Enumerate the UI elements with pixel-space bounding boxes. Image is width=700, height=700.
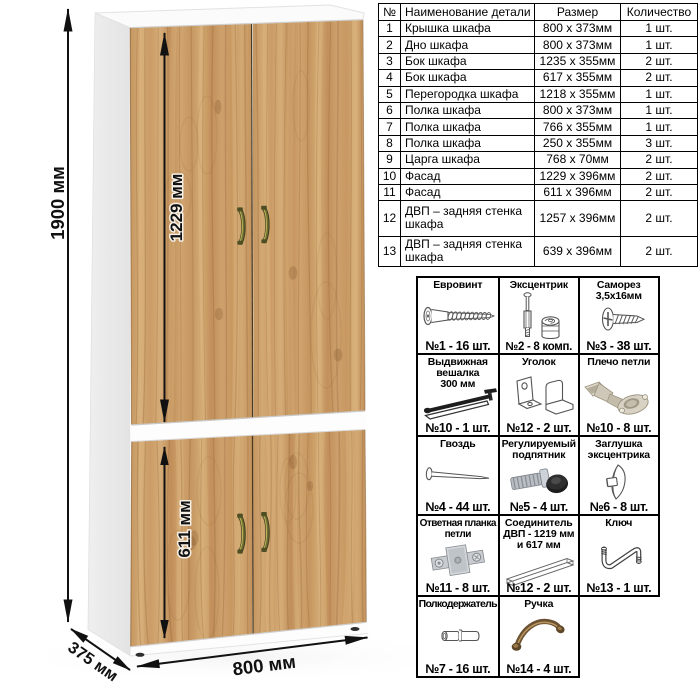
- svg-text:1229 мм: 1229 мм: [167, 174, 186, 242]
- svg-text:611 мм: 611 мм: [175, 500, 194, 557]
- svg-text:1900 мм: 1900 мм: [47, 166, 68, 240]
